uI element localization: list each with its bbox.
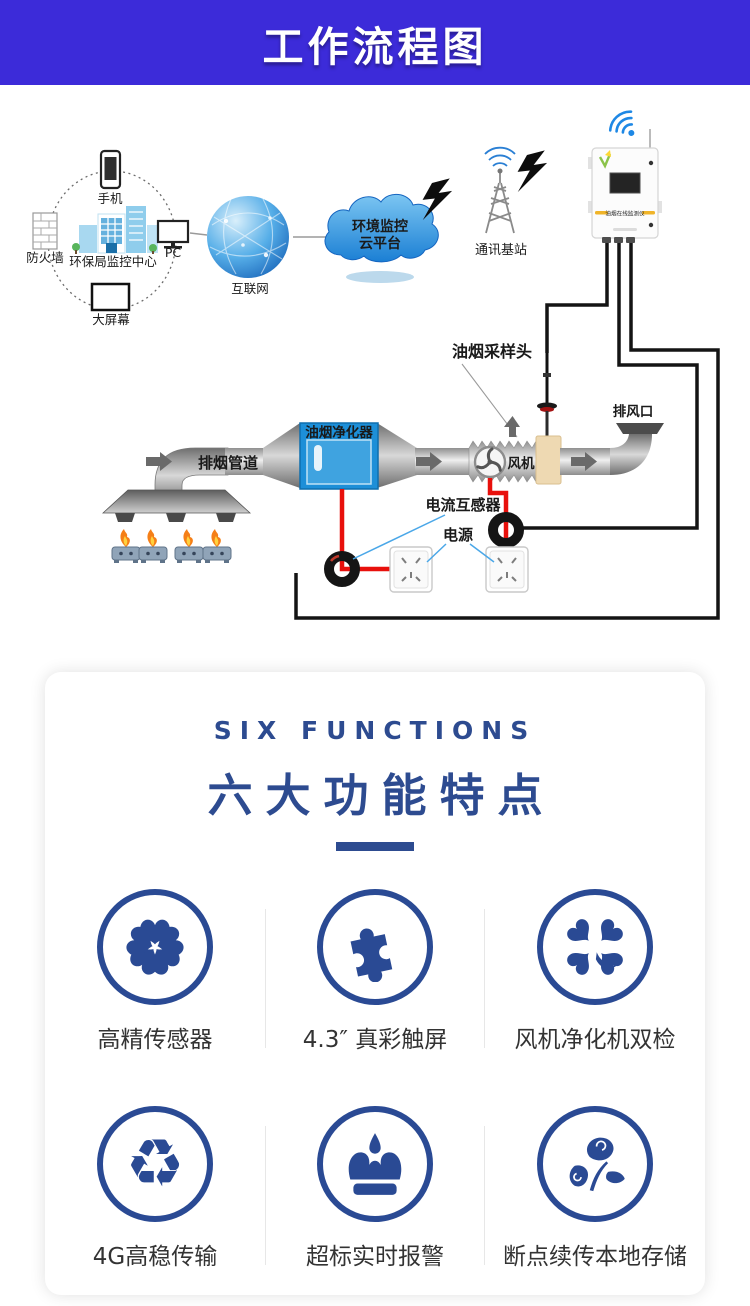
monitor-center-label: 环保局监控中心 [69, 254, 157, 269]
function-label: 4G高稳传输 [45, 1237, 265, 1271]
functions-grid: 高精传感器 4.3″ 真彩触屏 [45, 875, 705, 1271]
current-transformer-label: 电流互感器 [425, 496, 501, 514]
base-station-icon [485, 148, 515, 233]
exhaust-duct-label: 排烟管道 [198, 454, 258, 472]
recycle-icon: ♻ [97, 1106, 213, 1222]
leaf-icon [537, 1106, 653, 1222]
fan-symbol [475, 447, 505, 477]
power-outlet [390, 547, 432, 592]
power-pointer-lines [427, 544, 494, 562]
cloud-label-line2: 云平台 [359, 235, 401, 252]
page-title: 工作流程图 [263, 13, 488, 73]
power-label: 电源 [443, 526, 473, 544]
internet-label: 互联网 [231, 281, 269, 296]
pc-globe-link [190, 233, 207, 235]
power-outlet [486, 547, 528, 592]
puzzle-icon [317, 889, 433, 1005]
internet-globe-icon [207, 196, 289, 278]
wifi-icon [606, 107, 643, 144]
header-banner: 工作流程图 [0, 0, 750, 85]
function-item: 超标实时报警 [265, 1092, 485, 1271]
lightning-icon [515, 147, 549, 195]
kitchen-hood [103, 490, 250, 522]
function-item: 断点续传本地存储 [485, 1092, 705, 1271]
big-screen-label: 大屏幕 [92, 312, 130, 327]
function-label: 4.3″ 真彩触屏 [265, 1020, 485, 1054]
function-item: 高精传感器 [45, 875, 265, 1054]
crown-icon [317, 1106, 433, 1222]
title-underline [336, 842, 414, 851]
exhaust-outlet-label: 排风口 [613, 403, 654, 420]
pc-label: PC [165, 245, 182, 260]
buildings-icon [72, 206, 158, 254]
function-item: ♻ 4G高稳传输 [45, 1092, 265, 1271]
fan-label: 风机 [508, 455, 536, 472]
big-screen-icon [92, 284, 129, 310]
phone-icon [101, 151, 120, 188]
device-band-label: 油烟在线监测仪 [605, 210, 645, 218]
cloud-label-line1: 环境监控 [352, 218, 408, 235]
clover-icon [537, 889, 653, 1005]
base-station-label: 通讯基站 [475, 243, 527, 258]
firewall-icon [33, 213, 57, 249]
six-functions-subtitle: SIX FUNCTIONS [45, 716, 705, 745]
firewall-label: 防火墙 [26, 250, 64, 265]
probe-cable [547, 243, 607, 353]
function-label: 断点续传本地存储 [485, 1237, 705, 1271]
sampling-head-label: 油烟采样头 [452, 342, 532, 361]
monitor-device: 油烟在线监测仪 [588, 107, 662, 243]
purifier-label: 油烟净化器 [305, 424, 373, 441]
six-functions-card: SIX FUNCTIONS 六大功能特点 高精传感器 4.3″ [45, 672, 705, 1295]
six-functions-title: 六大功能特点 [45, 759, 705, 824]
function-label: 高精传感器 [45, 1020, 265, 1054]
cloud-platform-icon: 环境监控 云平台 [325, 194, 438, 283]
workflow-diagram: 手机 防火墙 环保局监控中心 PC 大屏幕 互联网 [0, 85, 750, 665]
function-item: 风机净化机双检 [485, 875, 705, 1054]
function-label: 超标实时报警 [265, 1237, 485, 1271]
gas-stoves [112, 529, 231, 563]
function-label: 风机净化机双检 [485, 1020, 705, 1054]
phone-label: 手机 [97, 191, 123, 206]
fan-flower-icon [97, 889, 213, 1005]
function-item: 4.3″ 真彩触屏 [265, 875, 485, 1054]
purifier-box: 油烟净化器 [300, 423, 378, 489]
